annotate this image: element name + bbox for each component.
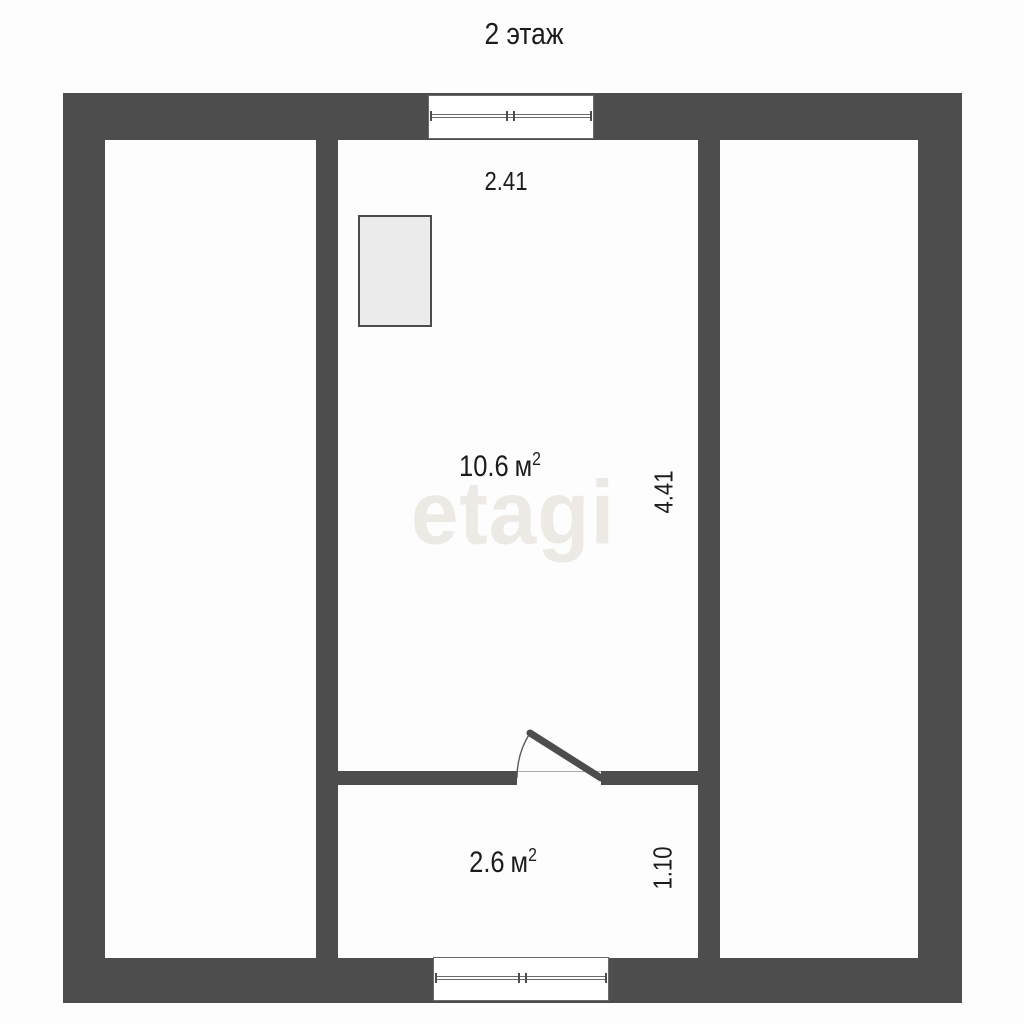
door-icon [505,714,617,790]
window-top-icon [428,95,594,139]
hall-area-text: 2.6м2 [469,846,537,880]
hall-height-dimension: 1.10 [648,846,679,889]
window-glass-line [430,114,592,118]
wall-left [63,93,105,1003]
page-title-text: 2 этаж [485,16,564,52]
window-glass-line [435,976,607,980]
window-tick [435,973,437,983]
page-title: 2 этаж [478,16,571,52]
wall-divider-right [698,140,720,958]
window-tick [605,973,607,983]
window-tick [590,111,592,121]
wall-divider-left [316,140,338,958]
room-area-text: 10.6м2 [459,450,541,484]
floor-plan: 2 этаж etagi 2.41 10.6м2 4.41 2.6м2 1.10 [0,0,1024,1024]
room-width-dimension-text: 2.41 [484,166,527,197]
hall-area-label: 2.6м2 [463,846,543,880]
window-tick [525,973,527,983]
wall-inner-left-segment [338,771,517,785]
furniture-block [358,215,432,327]
door-leaf [530,733,601,778]
window-tick [430,111,432,121]
window-tick [518,973,520,983]
window-tick [506,111,508,121]
room-height-dimension: 4.41 [649,470,680,513]
wall-right [918,93,962,1003]
door-arc [517,733,530,778]
room-width-dimension: 2.41 [481,166,532,197]
room-area-label: 10.6м2 [452,450,548,484]
window-bottom-icon [433,957,609,1001]
window-tick [513,111,515,121]
